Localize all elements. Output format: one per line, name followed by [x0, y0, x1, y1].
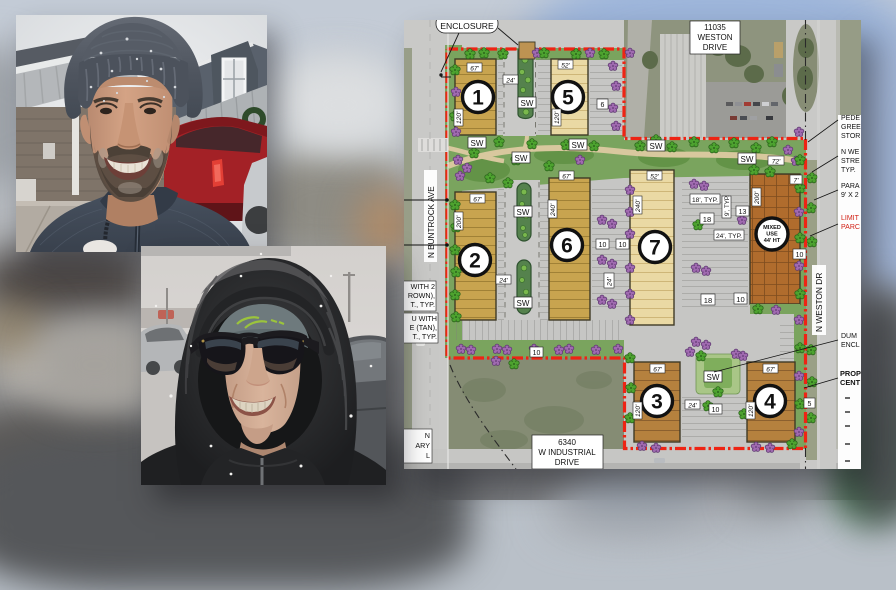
svg-text:6340: 6340 — [558, 438, 576, 447]
svg-text:W INDUSTRIAL: W INDUSTRIAL — [538, 448, 596, 457]
svg-text:18: 18 — [704, 296, 712, 305]
svg-text:SW: SW — [517, 208, 530, 217]
svg-text:18', TYP.: 18', TYP. — [692, 197, 718, 204]
svg-text:120': 120' — [554, 111, 561, 124]
svg-text:N WE: N WE — [841, 149, 860, 156]
svg-text:SW: SW — [515, 154, 528, 163]
svg-text:200': 200' — [456, 215, 463, 229]
svg-text:N: N — [425, 431, 430, 440]
svg-text:GREE: GREE — [841, 124, 861, 131]
svg-text:CENT: CENT — [840, 378, 861, 387]
svg-text:U WITH: U WITH — [411, 314, 437, 323]
svg-text:LIMIT: LIMIT — [841, 215, 860, 222]
svg-text:13: 13 — [739, 209, 747, 216]
svg-text:TYP.: TYP. — [841, 167, 856, 174]
svg-text:2: 2 — [469, 250, 481, 273]
svg-text:240': 240' — [550, 203, 557, 217]
svg-text:7': 7' — [794, 177, 800, 184]
svg-text:6: 6 — [601, 102, 605, 109]
svg-text:T., TYP.: T., TYP. — [410, 300, 435, 309]
svg-text:120': 120' — [635, 404, 642, 417]
svg-text:PEDE: PEDE — [841, 115, 860, 122]
svg-text:52': 52' — [561, 62, 570, 69]
svg-text:44' HT: 44' HT — [764, 238, 781, 244]
svg-text:ENCLOSURE: ENCLOSURE — [440, 21, 494, 31]
svg-text:SW: SW — [707, 373, 720, 382]
svg-text:9', TYP.: 9', TYP. — [724, 195, 731, 216]
svg-text:SW: SW — [741, 155, 754, 164]
svg-text:10: 10 — [736, 295, 744, 304]
svg-text:24', TYP.: 24', TYP. — [716, 233, 742, 240]
svg-text:5: 5 — [562, 87, 574, 110]
svg-text:SW: SW — [572, 141, 585, 150]
svg-text:24': 24' — [505, 77, 515, 84]
svg-text:120': 120' — [456, 111, 463, 124]
svg-text:L: L — [426, 451, 430, 460]
svg-text:STRE: STRE — [841, 158, 860, 165]
svg-text:5: 5 — [808, 401, 812, 408]
svg-text:10: 10 — [533, 350, 541, 357]
svg-text:6: 6 — [561, 235, 573, 258]
svg-text:67': 67' — [562, 173, 571, 180]
svg-text:67': 67' — [473, 196, 482, 203]
svg-text:DRIVE: DRIVE — [703, 43, 727, 52]
svg-text:PARA: PARA — [841, 183, 860, 190]
svg-text:ENCL: ENCL — [841, 342, 860, 349]
svg-text:10: 10 — [599, 242, 607, 249]
svg-text:WESTON: WESTON — [698, 33, 733, 42]
svg-text:N BUNTROCK AVE: N BUNTROCK AVE — [427, 186, 436, 258]
svg-text:SW: SW — [517, 299, 530, 308]
svg-text:67': 67' — [653, 366, 662, 373]
svg-text:ARY: ARY — [415, 441, 430, 450]
svg-text:11035: 11035 — [704, 23, 726, 32]
svg-text:T., TYP.: T., TYP. — [412, 332, 437, 341]
svg-text:ROWN),: ROWN), — [408, 291, 435, 300]
svg-text:WITH 2: WITH 2 — [411, 282, 435, 291]
svg-text:24': 24' — [687, 402, 697, 409]
svg-text:DUM: DUM — [841, 333, 857, 340]
svg-text:10: 10 — [796, 252, 804, 259]
svg-text:SW: SW — [471, 139, 484, 148]
svg-text:9' X 2: 9' X 2 — [841, 192, 859, 199]
svg-text:24': 24' — [498, 277, 508, 284]
svg-text:USE: USE — [766, 232, 778, 238]
svg-text:67': 67' — [470, 65, 479, 72]
svg-text:4: 4 — [764, 391, 776, 414]
svg-text:7: 7 — [649, 237, 661, 260]
svg-text:PARC: PARC — [841, 224, 860, 231]
svg-text:52': 52' — [650, 173, 659, 180]
svg-text:SW: SW — [521, 99, 534, 108]
svg-text:STOR: STOR — [841, 133, 860, 140]
svg-text:10: 10 — [619, 242, 627, 249]
svg-text:200': 200' — [754, 191, 761, 205]
svg-text:18: 18 — [703, 215, 711, 224]
svg-text:PROP: PROP — [840, 369, 861, 378]
svg-text:1: 1 — [472, 87, 484, 110]
svg-text:72': 72' — [772, 158, 781, 165]
svg-text:3: 3 — [651, 391, 663, 414]
svg-text:10: 10 — [712, 407, 720, 414]
svg-text:24': 24' — [607, 277, 614, 287]
svg-text:E (TAN),: E (TAN), — [410, 323, 437, 332]
svg-text:67': 67' — [766, 366, 775, 373]
svg-text:MIXED: MIXED — [763, 225, 781, 231]
svg-text:240': 240' — [635, 199, 642, 213]
svg-text:N WESTON DR: N WESTON DR — [814, 273, 824, 332]
svg-text:DRIVE: DRIVE — [555, 458, 579, 467]
svg-text:SW: SW — [650, 142, 663, 151]
svg-text:120': 120' — [748, 404, 755, 417]
